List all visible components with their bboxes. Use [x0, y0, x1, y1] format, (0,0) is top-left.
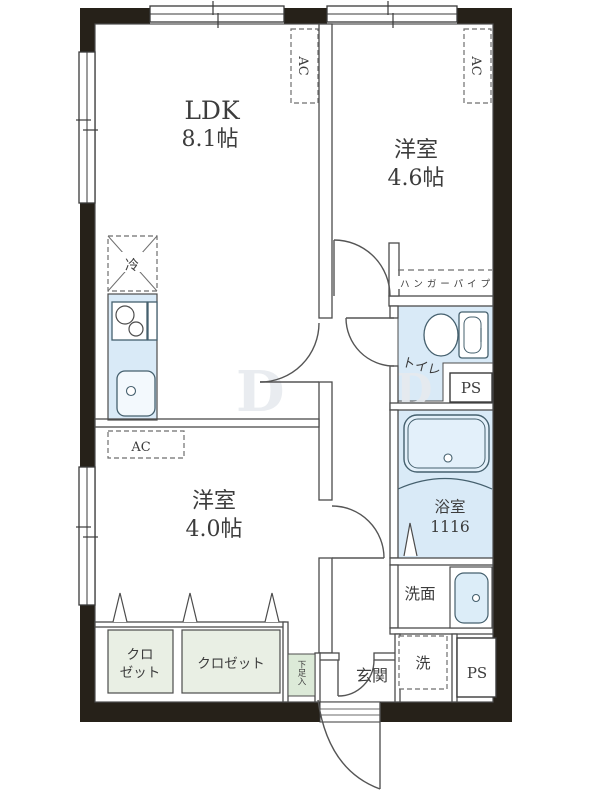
vanity-faucet	[473, 595, 480, 602]
closet-small-label-1: クロ	[127, 647, 154, 663]
door-bedroom1	[334, 240, 390, 296]
wall-spine-upper	[319, 24, 332, 318]
ps-label-lower: PS	[467, 664, 487, 682]
wall-bath-west	[390, 410, 398, 558]
shoe-box-label: 下足入	[296, 660, 306, 686]
wall-entrance-north-a	[319, 653, 339, 660]
entrance-label: 玄関	[356, 666, 388, 685]
vanity-basin	[455, 573, 488, 623]
entrance-threshold	[320, 702, 380, 722]
closet-large-label: クロゼット	[197, 656, 265, 672]
washroom-label: 洗面	[404, 585, 435, 603]
wall-toilet-west-a	[390, 306, 398, 318]
ps-label-upper: PS	[461, 379, 481, 397]
door-bedroom2	[332, 506, 384, 558]
window-left-ldk	[76, 52, 98, 203]
watermark-letter: D	[236, 359, 285, 425]
wall-shoebox-east	[315, 653, 320, 702]
ac-label-bedroom1: AC	[468, 55, 483, 75]
wall-washroom-west	[390, 565, 398, 628]
closet-door-triangle	[265, 593, 279, 622]
bath-label: 浴室	[434, 498, 465, 516]
wall-washer-ps-divider	[452, 634, 457, 702]
wall-toilet-bath-divider	[390, 403, 493, 410]
toilet-bowl	[424, 314, 458, 356]
wall-bottom-right	[380, 702, 493, 722]
ac-label-bedroom2: AC	[130, 440, 150, 455]
bedroom1-name: 洋室	[394, 138, 438, 163]
bedroom2-name: 洋室	[192, 489, 236, 514]
bathtub-drain	[444, 454, 452, 462]
kitchen-faucet	[127, 387, 136, 396]
kitchen-sink	[117, 371, 155, 416]
wall-spine-mid	[319, 382, 332, 500]
ac-label-ldk: AC	[295, 55, 310, 75]
wall-spine-lower	[319, 558, 332, 653]
closet-door-triangle	[183, 593, 197, 622]
toilet-tank-inner	[464, 317, 481, 353]
wall-right	[493, 8, 512, 722]
stove-side-panel	[148, 302, 157, 340]
bedroom2-area: 4.0帖	[186, 517, 243, 542]
wall-left-a	[80, 8, 95, 52]
wall-bedroom1-south	[389, 296, 493, 306]
wall-closet-front	[95, 622, 285, 627]
fridge-label: 冷	[125, 258, 139, 274]
hanger-pipe: ハンガーパイプ	[398, 270, 492, 290]
closet-small-label-2: ゼット	[120, 665, 161, 681]
wall-closet-east	[283, 622, 288, 702]
bedroom1-area: 4.6帖	[388, 166, 445, 191]
wall-hanger-post	[389, 243, 399, 296]
closet-door-triangle	[113, 593, 127, 622]
floorplan-canvas: D D	[0, 0, 600, 800]
window-left-bedroom2	[76, 467, 98, 605]
ldk-name: LDK	[184, 96, 241, 125]
wall-bottom-left	[80, 702, 320, 722]
floorplan-drawing: D D	[0, 0, 600, 800]
wall-bath-washroom-divider	[390, 558, 493, 565]
ldk-area: 8.1帖	[182, 127, 239, 152]
wall-top-mid	[284, 8, 327, 24]
wall-washroom-south	[390, 628, 493, 634]
bathtub	[404, 415, 489, 472]
bath-size-label: 1116	[430, 518, 469, 536]
door-entrance	[318, 700, 380, 789]
washer-label: 洗	[415, 654, 430, 672]
door-toilet	[346, 318, 394, 366]
wall-left-b	[80, 203, 95, 467]
